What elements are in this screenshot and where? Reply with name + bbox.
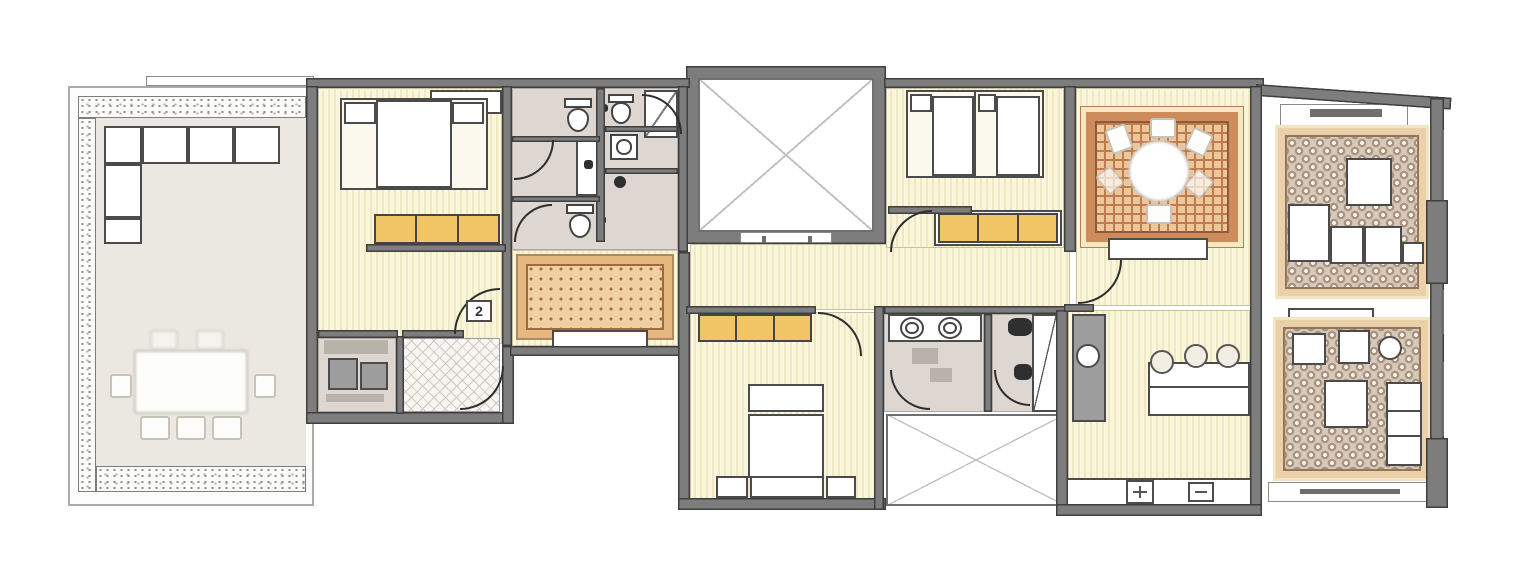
bedroom1-pillow — [344, 102, 376, 124]
dining-chair — [1150, 118, 1176, 138]
wall — [512, 196, 600, 202]
kitchen-bottom-counter — [1062, 478, 1254, 506]
wall — [605, 168, 678, 174]
living2-round-table — [1378, 336, 1402, 360]
wall — [510, 346, 690, 356]
pilaster — [1426, 438, 1448, 508]
bedroom1-duvet — [376, 100, 452, 188]
terrace-planter-top — [78, 96, 306, 118]
sink — [610, 134, 638, 160]
bedroom2-bench — [938, 213, 1058, 243]
toilet — [564, 98, 592, 132]
hallway-rug — [518, 256, 672, 338]
sink — [938, 317, 962, 339]
washing-machine — [328, 358, 358, 390]
bedroom2-duvet — [996, 96, 1040, 176]
utility-counter — [324, 340, 388, 354]
wall — [306, 78, 690, 88]
closet — [1032, 314, 1058, 412]
utility-shelf — [326, 394, 384, 402]
neighbor-wall-band — [146, 76, 314, 86]
bedroom3-wardrobe — [716, 476, 748, 498]
kitchen-stove — [1126, 480, 1154, 504]
terrace-sofa-corner — [104, 126, 142, 164]
terrace-chair — [140, 416, 170, 440]
apartment-floor-plan: 2 — [0, 0, 1528, 584]
dining-chair — [1146, 204, 1172, 224]
unit-number-label: 2 — [466, 300, 492, 322]
faucet-icon — [584, 160, 593, 169]
bedroom3-bench — [698, 314, 812, 342]
toilet — [566, 204, 594, 238]
corridor-floor — [690, 244, 1070, 310]
bedroom2-pillow — [910, 94, 932, 112]
bath-mat — [930, 368, 952, 382]
bedroom3-bed — [748, 414, 824, 478]
terrace-sofa-seat — [104, 218, 142, 244]
bedroom3-wardrobe — [826, 476, 856, 498]
bath-mat — [912, 348, 938, 364]
bedroom2-duvet — [932, 96, 974, 176]
terrace-chair — [110, 374, 132, 398]
wall — [502, 86, 512, 346]
living2-sofa — [1386, 382, 1422, 466]
wall — [596, 88, 605, 242]
dining-table-round — [1128, 140, 1190, 202]
terrace-sofa-seat — [104, 164, 142, 218]
terrace-chair — [176, 416, 206, 440]
pilaster — [1426, 200, 1448, 284]
wall — [1064, 86, 1076, 252]
window-line — [1441, 130, 1444, 200]
terrace-planter-bottom — [96, 466, 306, 492]
living2-armchair — [1338, 330, 1370, 364]
wall — [678, 86, 688, 252]
terrace-chair — [212, 416, 242, 440]
shower-head-icon — [614, 176, 626, 188]
terrace-sofa-seat — [142, 126, 188, 164]
unit-number-text: 2 — [475, 303, 483, 319]
terrace-dining-table — [134, 350, 248, 414]
courtyard2-lightwell — [886, 414, 1066, 506]
wall — [884, 306, 1066, 314]
terrace-chair — [254, 374, 276, 398]
dryer — [360, 362, 388, 390]
wall — [678, 498, 886, 510]
wall — [318, 330, 398, 338]
window-tick — [808, 236, 812, 243]
bedroom1-pillow — [452, 102, 484, 124]
kitchen-sink — [1188, 482, 1214, 502]
terrace-chair — [196, 330, 224, 350]
wall — [1056, 310, 1068, 516]
window-line — [1441, 290, 1444, 334]
window-line — [1441, 362, 1444, 436]
wall — [396, 336, 404, 414]
living1-sofa-seat — [1330, 226, 1364, 264]
wall — [1250, 86, 1262, 510]
terrace-chair — [150, 330, 178, 350]
wall — [366, 244, 506, 252]
living1-side-table — [1402, 242, 1424, 264]
living2-armchair — [1292, 333, 1326, 365]
wall — [306, 86, 318, 424]
window-tick — [762, 236, 766, 243]
terrace-sofa-seat — [188, 126, 234, 164]
wall — [874, 306, 884, 510]
kitchen-stool — [1150, 350, 1174, 374]
living1-coffee-table — [1346, 158, 1392, 206]
wall — [1056, 504, 1262, 516]
kitchen-round-sink — [1076, 344, 1100, 368]
living1-sofa-chaise — [1288, 204, 1330, 262]
living1-sofa-seat — [1364, 226, 1402, 264]
terrace-planter-left — [78, 118, 96, 492]
wall — [678, 252, 690, 510]
living2-center-table — [1324, 380, 1368, 428]
kitchen-stool — [1184, 344, 1208, 368]
toilet — [608, 94, 634, 124]
bedroom1-bench — [374, 214, 500, 244]
sink — [900, 317, 924, 339]
wall-hung-toilet — [1008, 318, 1032, 336]
courtyard1-window — [740, 232, 832, 243]
wall — [1064, 304, 1094, 312]
wall — [686, 306, 816, 314]
bedroom3-wardrobe — [750, 476, 824, 498]
bedroom3-headboard — [748, 384, 824, 412]
wall — [306, 412, 514, 424]
living2-window-bar — [1300, 489, 1400, 494]
living1-window-bar — [1310, 109, 1382, 117]
bedroom2-pillow — [978, 94, 996, 112]
kitchen-stool — [1216, 344, 1240, 368]
wall — [502, 346, 514, 424]
terrace-sofa-seat — [234, 126, 280, 164]
dining-window-bench — [1108, 238, 1208, 260]
courtyard1-lightwell — [698, 78, 874, 232]
kitchen-tall-units — [1072, 314, 1106, 422]
wall — [984, 314, 992, 412]
